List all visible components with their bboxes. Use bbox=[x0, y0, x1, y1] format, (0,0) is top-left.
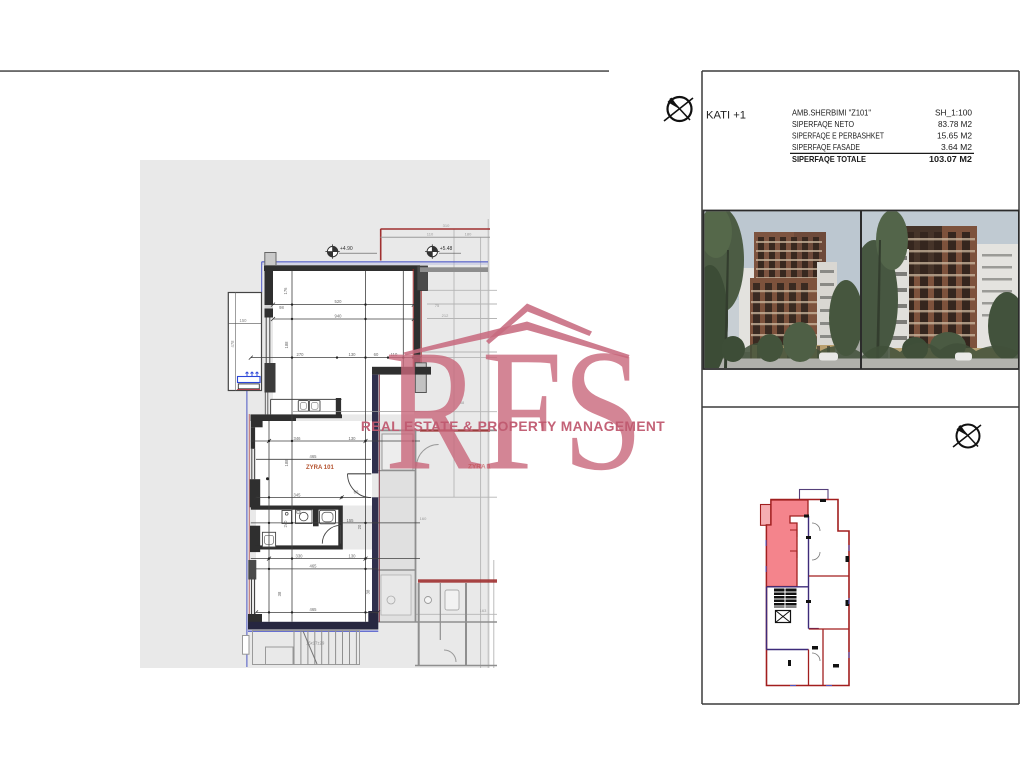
svg-text:163: 163 bbox=[480, 608, 487, 613]
svg-text:103.07 M2: 103.07 M2 bbox=[929, 154, 972, 164]
svg-text:98: 98 bbox=[279, 305, 284, 310]
svg-text:940: 940 bbox=[335, 314, 343, 319]
svg-text:SIPERFAQE NETO: SIPERFAQE NETO bbox=[792, 119, 854, 129]
svg-text:110: 110 bbox=[427, 232, 434, 237]
svg-text:60: 60 bbox=[354, 490, 359, 495]
svg-text:SH_1:100: SH_1:100 bbox=[935, 108, 972, 118]
svg-text:130: 130 bbox=[349, 352, 357, 357]
svg-text:155: 155 bbox=[347, 518, 355, 523]
svg-text:465: 465 bbox=[310, 454, 318, 459]
svg-text:465: 465 bbox=[310, 607, 318, 612]
svg-text:38: 38 bbox=[277, 591, 282, 596]
svg-text:346: 346 bbox=[294, 436, 302, 441]
svg-text:60: 60 bbox=[374, 352, 379, 357]
svg-text:3.64 M2: 3.64 M2 bbox=[941, 142, 972, 152]
svg-text:SIPERFAQE TOTALE: SIPERFAQE TOTALE bbox=[792, 154, 866, 164]
svg-text:15x17±29: 15x17±29 bbox=[306, 641, 325, 646]
svg-text:SIPERFAQE FASADE: SIPERFAQE FASADE bbox=[792, 142, 860, 152]
svg-text:130: 130 bbox=[349, 436, 357, 441]
svg-text:188: 188 bbox=[284, 459, 289, 467]
svg-text:AMB.SHERBIMI "Z101": AMB.SHERBIMI "Z101" bbox=[792, 108, 871, 118]
svg-text:+5.48: +5.48 bbox=[440, 246, 453, 252]
svg-text:RFS: RFS bbox=[385, 313, 643, 506]
svg-text:38: 38 bbox=[366, 589, 371, 594]
svg-text:345: 345 bbox=[294, 492, 302, 497]
svg-text:15.65 M2: 15.65 M2 bbox=[937, 131, 972, 141]
svg-text:330: 330 bbox=[296, 554, 304, 559]
svg-text:ZYRA 1: ZYRA 1 bbox=[468, 464, 491, 471]
svg-text:160: 160 bbox=[420, 516, 427, 521]
svg-text:176: 176 bbox=[283, 287, 288, 295]
svg-text:REAL ESTATE & PROPERTY MANAGEM: REAL ESTATE & PROPERTY MANAGEMENT bbox=[361, 419, 665, 434]
svg-text:465: 465 bbox=[310, 564, 318, 569]
svg-text:478: 478 bbox=[230, 340, 235, 348]
svg-text:180: 180 bbox=[465, 232, 472, 237]
svg-text:+4.90: +4.90 bbox=[340, 246, 353, 252]
svg-text:188: 188 bbox=[284, 341, 289, 349]
svg-text:83.78 M2: 83.78 M2 bbox=[938, 119, 972, 129]
svg-text:130: 130 bbox=[349, 554, 357, 559]
svg-text:240: 240 bbox=[283, 520, 288, 528]
svg-text:520: 520 bbox=[335, 299, 343, 304]
svg-text:270: 270 bbox=[297, 352, 305, 357]
svg-text:75: 75 bbox=[435, 303, 440, 308]
svg-text:310: 310 bbox=[443, 223, 450, 228]
svg-text:20: 20 bbox=[357, 524, 362, 529]
svg-text:ZYRA 101: ZYRA 101 bbox=[306, 465, 334, 471]
svg-text:SIPERFAQE E PERBASHKET: SIPERFAQE E PERBASHKET bbox=[792, 131, 884, 141]
svg-text:KATI +1: KATI +1 bbox=[706, 110, 746, 122]
svg-text:150: 150 bbox=[240, 318, 248, 323]
